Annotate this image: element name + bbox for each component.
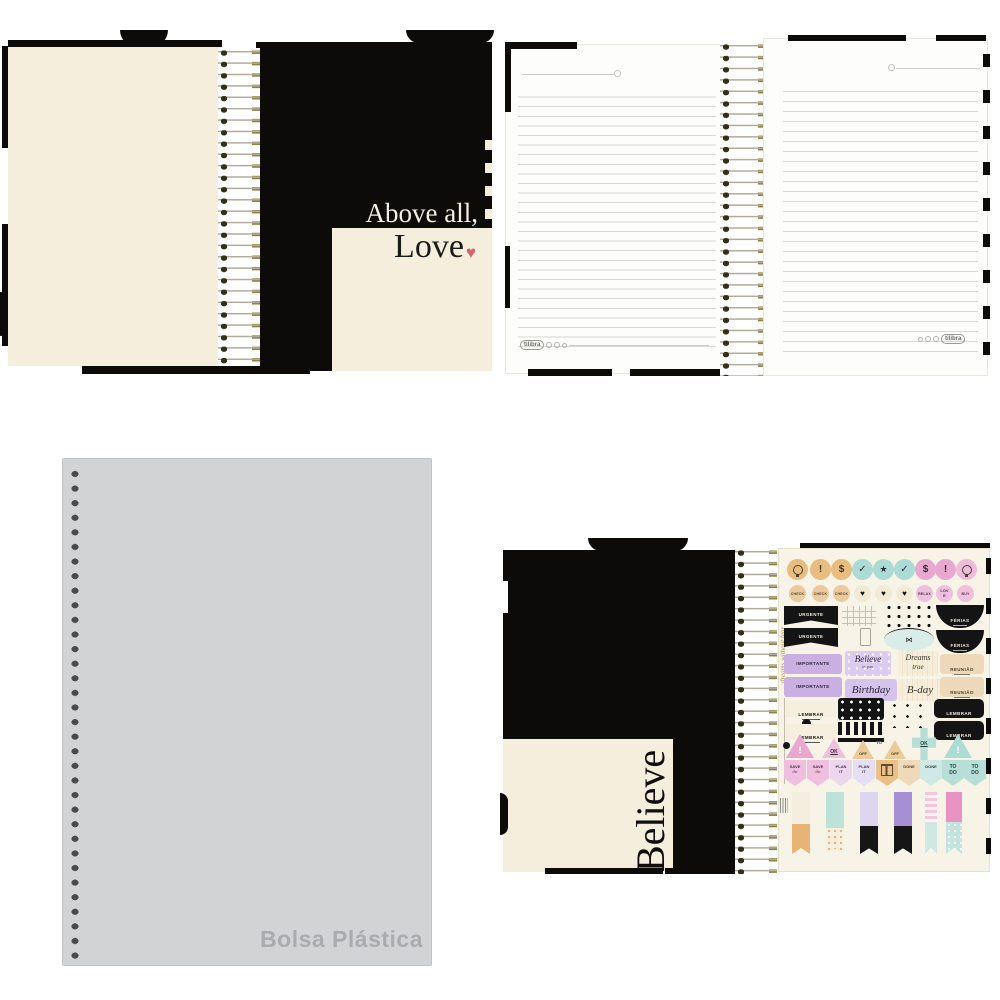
page-header-line <box>522 74 614 75</box>
view-ruled-pages: tilibra tilibra <box>500 28 1000 378</box>
strip-top <box>826 792 844 828</box>
strip-top <box>894 792 912 826</box>
label: IMPORTANTE <box>796 662 829 667</box>
cake-sticker <box>838 698 884 742</box>
ferias-sticker: FÉRIAS <box>936 605 984 628</box>
save-the-date-pennant: SAVE the <box>807 760 829 786</box>
label: RELAX <box>918 592 931 596</box>
scissors-icon <box>614 70 621 77</box>
label: DO <box>971 770 979 776</box>
label: the <box>793 769 798 774</box>
ink-blob <box>783 742 790 749</box>
label: REUNIÃO <box>950 668 974 675</box>
lembrar-dark-sticker: LEMBRAR <box>934 699 984 718</box>
label: LEMBRAR <box>946 712 971 719</box>
label: DO <box>949 770 957 776</box>
cert-icon <box>562 343 567 348</box>
spiral-binding <box>735 548 777 874</box>
lembrar-sticker: LEMBRAR <box>786 701 836 717</box>
bookmark-strip <box>946 792 962 854</box>
strip-top <box>792 792 810 824</box>
gift-icon <box>881 764 893 776</box>
lightbulb-icon <box>793 565 803 575</box>
cover-label-box: Love♥ <box>332 228 492 371</box>
cover-quote-line1: Above all, <box>366 200 478 227</box>
page-footer: tilibra <box>520 340 709 350</box>
spiral-binding <box>720 42 766 376</box>
urgente-sticker: URGENTE <box>784 628 838 647</box>
bookmark-strip <box>925 792 937 854</box>
label: ! <box>799 745 802 755</box>
script-label: Dreams <box>898 654 938 663</box>
exclamation-icon: ! <box>944 564 947 575</box>
heart-sticker: ♥ <box>875 585 892 602</box>
label: DONE <box>903 764 915 769</box>
heart-sticker: ♥ <box>854 585 871 602</box>
script-sublabel: true <box>898 663 938 671</box>
check-sticker: ✓ <box>852 559 873 580</box>
ruled-lines <box>783 82 978 360</box>
cover-pattern-bar <box>788 35 906 41</box>
cover-pattern-bar <box>505 246 510 308</box>
label: CHECK <box>791 592 804 596</box>
check-label-sticker: CHECK <box>833 585 850 602</box>
cert-icon <box>918 337 923 342</box>
cake-striped-tier <box>838 722 884 735</box>
off-triangle-sticker: OFF <box>884 740 906 759</box>
love-sticker: LOVE <box>936 585 953 602</box>
label: ! <box>957 745 960 755</box>
label: IT <box>862 769 866 774</box>
strip-top <box>925 792 937 822</box>
check-label-sticker: CHECK <box>812 585 829 602</box>
cover-edge-notch <box>503 581 508 613</box>
label: the <box>816 769 821 774</box>
lightbulb-sticker <box>787 559 808 580</box>
save-the-date-pennant: SAVE the <box>784 760 806 786</box>
barcode-icon <box>780 798 788 813</box>
sticker-sheet-page: dreams without fear ! $ ✓ ★ ✓ $ ! CHECK … <box>778 548 990 872</box>
label: LEMBRAR <box>798 713 823 720</box>
script-label: Believe <box>845 654 891 665</box>
front-cover-believe: Believe <box>503 550 737 872</box>
label: URGENTE <box>799 635 824 640</box>
exclamation-sticker: ! <box>810 559 831 580</box>
cert-icon <box>546 342 552 348</box>
view-notebook-love: Above all, Love♥ <box>0 28 500 378</box>
lightbulb-icon <box>962 565 972 575</box>
punched-holes <box>67 467 83 959</box>
label: LOVE <box>940 589 949 599</box>
ok-cross-sticker: OK <box>912 728 936 760</box>
cover-pattern-corner <box>505 42 577 49</box>
star-icon: ★ <box>879 564 887 575</box>
clip-sticker <box>860 628 871 646</box>
cert-icon <box>554 342 560 348</box>
strip-bottom <box>946 822 962 854</box>
reuniao-sticker: REUNIÃO <box>940 654 984 674</box>
cover-pattern-bar <box>936 35 986 41</box>
lightbulb-sticker <box>956 559 977 580</box>
believe-in-you-sticker: Believe in you <box>845 651 891 676</box>
check-sticker: ✓ <box>894 559 915 580</box>
view-plastic-sleeve: Bolsa Plástica <box>0 440 500 980</box>
scissors-icon <box>888 64 895 71</box>
label: DONE <box>925 764 937 769</box>
bday-sticker: B-day <box>898 679 942 701</box>
exclamation-icon: ! <box>819 564 822 575</box>
cover-pattern-curve <box>500 793 508 835</box>
inside-cover-page <box>8 47 222 366</box>
gift-pennant <box>876 760 898 786</box>
done-pennant: DONE <box>898 760 920 786</box>
label: OK <box>830 749 838 755</box>
heart-icon: ♥ <box>902 589 907 598</box>
importante-sticker: IMPORTANTE <box>784 677 842 697</box>
ferias-sticker: FÉRIAS <box>936 630 984 653</box>
lembrar-sticker: LEMBRAR <box>786 724 836 740</box>
to-do-pennant: TO DO <box>964 760 986 786</box>
done-pennant: DONE <box>920 760 942 786</box>
label: BUY <box>962 592 970 596</box>
to-do-pennant: TO DO <box>942 760 964 786</box>
strip-bottom <box>925 822 937 854</box>
label: REUNIÃO <box>950 691 974 698</box>
label: IMPORTANTE <box>796 685 829 690</box>
label: OFF <box>891 751 899 756</box>
cover-pattern-bar <box>630 369 720 376</box>
cake-top-tier <box>838 698 884 720</box>
bookmark-strip <box>792 792 810 854</box>
strip-top <box>946 792 962 822</box>
heart-icon: ♥ <box>860 589 865 598</box>
sheet-edge-dashes <box>986 558 991 858</box>
label: URGENTE <box>799 613 824 618</box>
label: IT <box>839 769 843 774</box>
label: CHECK <box>835 592 848 596</box>
exclamation-sticker: ! <box>935 559 956 580</box>
front-cover-love: Above all, Love♥ <box>256 42 492 371</box>
cover-pattern-bar <box>528 369 612 376</box>
star-sticker: ★ <box>873 559 894 580</box>
heart-sticker: ♥ <box>896 585 913 602</box>
dollar-sticker: $ <box>915 559 936 580</box>
page-header-line <box>896 68 980 69</box>
check-label-sticker: CHECK <box>789 585 806 602</box>
grid-pattern-sticker <box>842 606 876 626</box>
cover-quote-line2: Love <box>394 228 464 265</box>
cover-word-vertical: Believe <box>628 736 674 872</box>
plastic-sheet: Bolsa Plástica <box>62 458 432 966</box>
dollar-icon: $ <box>839 564 845 575</box>
reuniao-sticker: REUNIÃO <box>940 677 984 697</box>
off-triangle-sticker: OFF <box>852 740 874 759</box>
brand-logo: tilibra <box>941 334 965 344</box>
cover-pattern-corner <box>505 42 511 112</box>
plan-it-pennant: PLAN IT <box>830 760 852 786</box>
strip-top <box>860 792 878 826</box>
view-notebook-stickers: Believe dreams without fear ! $ ✓ ★ ✓ $ … <box>500 528 1000 888</box>
footer-line <box>569 345 709 346</box>
script-label: Birthday <box>852 684 891 696</box>
check-icon: ✓ <box>900 564 908 575</box>
strip-bottom <box>792 824 810 854</box>
cert-icon <box>925 336 931 342</box>
cover-edge-dashes <box>485 140 492 370</box>
cover-pattern-bar <box>665 868 735 874</box>
ruled-lines <box>518 88 716 356</box>
cert-icon <box>933 336 939 342</box>
bookmark-strip <box>860 792 878 854</box>
cover-quote-line2-wrap: Love♥ <box>394 230 476 264</box>
label: FÉRIAS <box>951 619 970 626</box>
dreams-true-sticker: Dreams true <box>898 651 938 676</box>
script-sublabel: in you <box>845 665 891 669</box>
spiral-binding <box>218 48 260 366</box>
brand-logo: tilibra <box>520 340 544 350</box>
strip-bottom <box>860 826 878 854</box>
label: FÉRIAS <box>951 644 970 651</box>
dots-scatter-sticker <box>888 700 930 728</box>
plastic-sleeve-label: Bolsa Plástica <box>260 926 423 953</box>
page-footer: tilibra <box>918 334 965 344</box>
to-text-sticker: TO <box>876 740 882 745</box>
strip-bottom <box>894 826 912 854</box>
heart-icon: ♥ <box>881 589 886 598</box>
bookmark-strip <box>826 792 844 854</box>
cover-edge-dashes <box>983 54 990 360</box>
polka-dots-sticker <box>884 603 934 627</box>
importante-sticker: IMPORTANTE <box>784 654 842 674</box>
plan-it-pennant: PLAN IT <box>853 760 875 786</box>
label: CHECK <box>814 592 827 596</box>
dollar-icon: $ <box>923 564 929 575</box>
buy-sticker: BUY <box>957 585 974 602</box>
bookmark-strip <box>894 792 912 854</box>
label: OFF <box>859 751 867 756</box>
script-label: B-day <box>907 684 933 696</box>
cover-pattern-bar <box>545 868 663 874</box>
relax-sticker: RELAX <box>916 585 933 602</box>
label: OK <box>920 741 928 747</box>
lingerie-sticker <box>884 628 934 651</box>
dollar-sticker: $ <box>831 559 852 580</box>
urgente-sticker: URGENTE <box>784 606 838 625</box>
check-icon: ✓ <box>858 564 866 575</box>
heart-icon: ♥ <box>464 243 476 262</box>
strip-bottom <box>826 828 844 854</box>
